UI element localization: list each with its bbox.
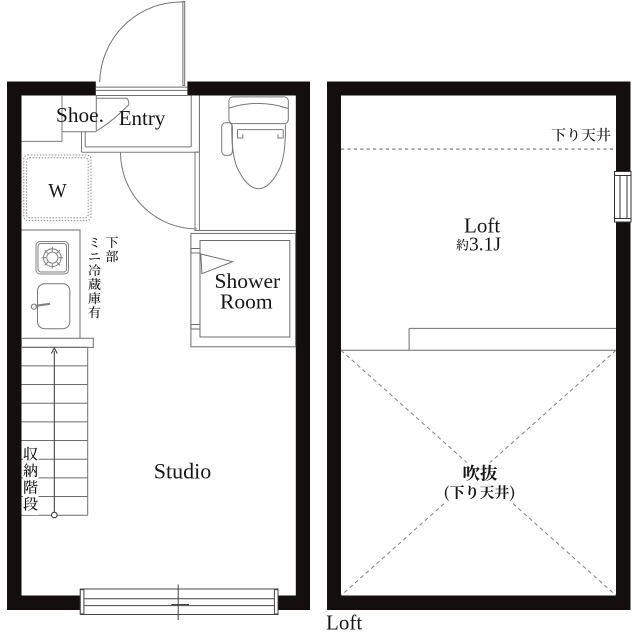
svg-text:Studio: Studio <box>154 459 211 484</box>
svg-text:Room: Room <box>220 290 273 314</box>
svg-text:Entry: Entry <box>119 106 166 130</box>
svg-text:3.1J: 3.1J <box>469 234 501 255</box>
svg-text:Shoe.: Shoe. <box>56 103 104 127</box>
svg-text:W: W <box>48 181 67 202</box>
svg-text:Loft: Loft <box>326 611 362 635</box>
